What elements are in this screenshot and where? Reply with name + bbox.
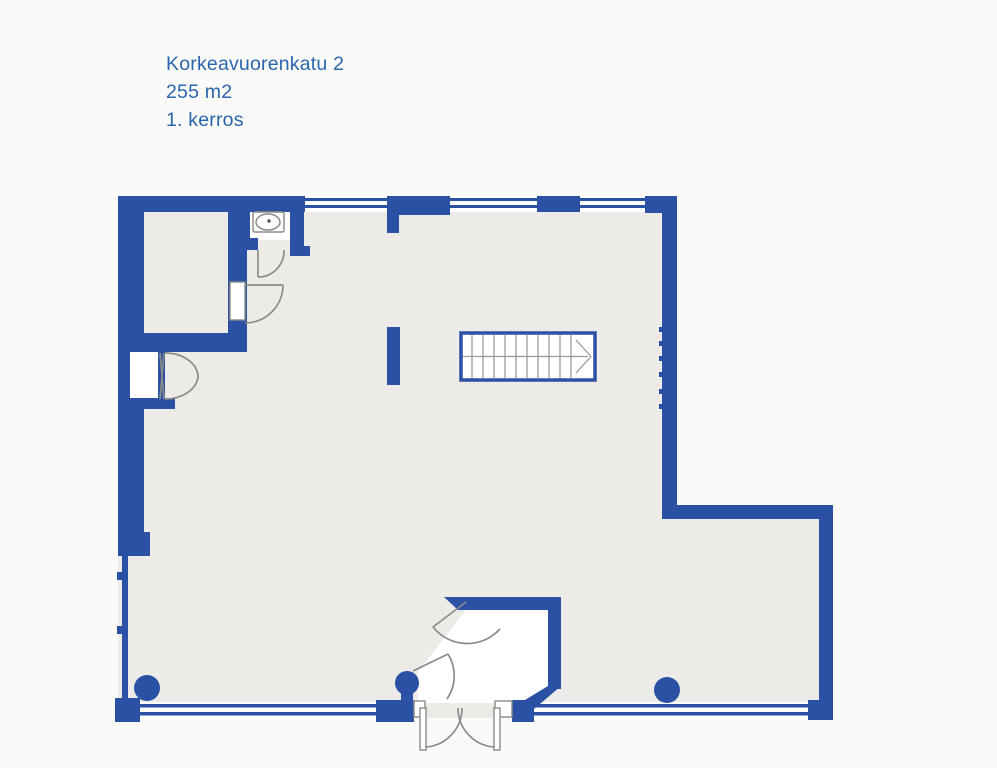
floorplan-page: Korkeavuorenkatu 2 255 m2 1. kerros: [0, 0, 997, 768]
exterior-door-leaf-right: [494, 708, 500, 750]
center-pillar: [387, 327, 400, 385]
window-top-2-line-b: [450, 205, 537, 208]
mid-horizontal-wall: [662, 505, 833, 519]
right-wall-tick-2: [659, 341, 665, 346]
left-wall-tick-2: [117, 626, 126, 634]
vestibule-top-wall: [456, 597, 560, 610]
closet-interior: [130, 352, 158, 400]
column-entrance-stem: [401, 693, 413, 707]
vestibule-right-wall: [548, 597, 561, 689]
toilet-icon: [253, 212, 284, 232]
right-wall-tick-6: [659, 404, 665, 409]
column-entrance: [395, 671, 419, 695]
column-bottom-left: [134, 675, 160, 701]
window-bottom-left-line-a: [140, 704, 382, 708]
elevator-interior: [144, 212, 228, 333]
window-top-1-line-a: [305, 198, 387, 201]
wc-bottom-stub: [237, 238, 258, 250]
exterior-door-leaf-left: [420, 708, 426, 750]
hall-door-jamb: [230, 282, 245, 320]
top-wall-left: [118, 196, 305, 212]
window-top-1-line-b: [305, 205, 387, 208]
right-wall-tick-1: [659, 327, 665, 332]
top-wall-pier-2: [537, 196, 580, 212]
window-band-top: [305, 196, 645, 212]
bottom-right-corner-block: [808, 700, 833, 720]
top-wall-pier-1-return: [387, 196, 399, 233]
window-bottom-right-line-b: [534, 712, 808, 716]
left-wall-tick-1: [117, 572, 126, 580]
left-wall-pier: [118, 532, 150, 556]
right-wall-tick-5: [659, 389, 665, 394]
right-wall-tick-3: [659, 356, 665, 361]
elevator-bottom-wall: [118, 333, 247, 352]
wc-right-wall-foot: [290, 246, 310, 256]
right-wall-tick-4: [659, 372, 665, 377]
wc-right-wall: [290, 196, 304, 250]
floor-plan-drawing: [0, 0, 997, 768]
window-top-2-line-a: [450, 198, 537, 201]
window-bottom-left-line-b: [140, 712, 382, 716]
window-top-3-line-b: [580, 205, 645, 208]
column-bottom-right: [654, 677, 680, 703]
stairs: [461, 333, 595, 380]
window-top-3-line-a: [580, 198, 645, 201]
right-wall-lower: [819, 505, 833, 702]
window-bottom-right-line-a: [534, 704, 808, 708]
entrance-right-pier: [512, 700, 534, 722]
bottom-left-corner-block: [115, 698, 140, 722]
